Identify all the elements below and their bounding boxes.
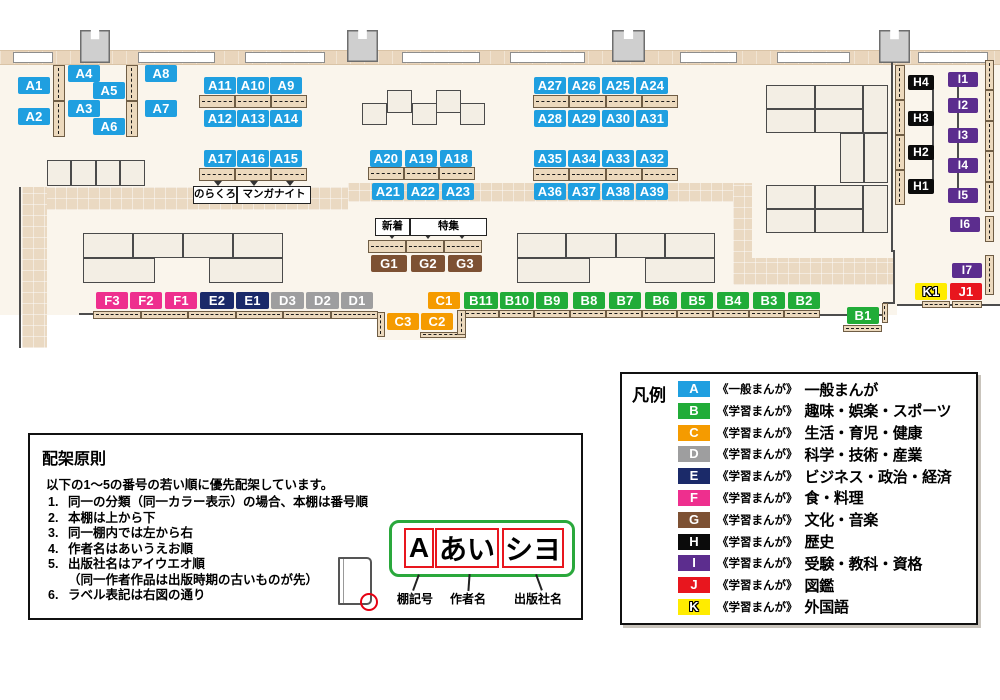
shelf-label-a17: A17 (204, 150, 236, 167)
shelf-label-a11: A11 (204, 77, 236, 94)
legend-color-chip: B (678, 403, 710, 419)
bookshelf (985, 216, 994, 242)
shelf-label-a16: A16 (237, 150, 269, 167)
label-example-cell: A (404, 528, 434, 568)
bookshelf (533, 168, 678, 181)
bookshelf-segment (368, 240, 406, 253)
legend-category: 受験・教科・資格 (805, 553, 923, 574)
bookshelf-segment (985, 90, 994, 120)
label-example-caption: 出版社名 (514, 590, 562, 607)
reading-table (766, 109, 815, 133)
legend-color-chip: H (678, 534, 710, 550)
shelf-label-d2: D2 (306, 292, 339, 309)
reading-table (645, 258, 715, 283)
shelf-label-a30: A30 (602, 110, 634, 127)
principles-intro: 以下の1～5の番号の若い順に優先配架しています。 (46, 474, 333, 493)
bookshelf-segment (843, 325, 882, 332)
reading-table (864, 133, 888, 183)
shelf-label-a38: A38 (602, 183, 634, 200)
reading-table (120, 160, 145, 186)
legend-category: ビジネス・政治・経済 (805, 466, 952, 487)
shelf-label-i7: I7 (952, 263, 982, 278)
bookshelf (93, 311, 378, 319)
bookshelf-segment (404, 167, 440, 180)
reading-table (815, 109, 863, 133)
shelf-label-a14: A14 (270, 110, 302, 127)
shelf-label-a26: A26 (568, 77, 600, 94)
bookshelf-segment (642, 310, 678, 318)
legend-color-chip: G (678, 512, 710, 528)
bookshelf-segment (236, 311, 284, 319)
reading-table (766, 209, 815, 233)
legend-category: 図鑑 (805, 575, 834, 596)
bookshelf (882, 303, 888, 323)
shelf-label-a31: A31 (636, 110, 668, 127)
reading-table (815, 85, 863, 109)
shelf-label-i3: I3 (948, 128, 978, 143)
legend-color-chip: E (678, 468, 710, 484)
principles-rule: 3.同一棚内では左から右 (48, 526, 368, 542)
legend-category: 趣味・娯楽・スポーツ (805, 400, 952, 421)
reading-table (460, 103, 485, 125)
bookshelf-segment (533, 95, 569, 108)
bookshelf-segment (922, 301, 950, 308)
principles-rule: 1.同一の分類（同一カラー表示）の場合、本棚は番号順 (48, 495, 368, 511)
shelf-label-b9: B9 (536, 292, 568, 309)
bookshelf-segment (235, 95, 271, 108)
wall-window (510, 52, 585, 63)
bookshelf-segment (569, 168, 605, 181)
reading-table (412, 103, 437, 125)
bookshelf-segment (713, 310, 749, 318)
shelf-label-a27: A27 (534, 77, 566, 94)
legend-row-f: F《学習まんが》食・料理 (678, 490, 952, 506)
legend-row-i: I《学習まんが》受験・教科・資格 (678, 555, 952, 571)
shelf-label-a7: A7 (145, 100, 177, 117)
shelf-label-a20: A20 (370, 150, 402, 167)
floor-aisle (22, 187, 47, 348)
legend-color-chip: K (678, 599, 710, 615)
bookshelf-segment (606, 95, 642, 108)
shelf-label-c1: C1 (428, 292, 460, 309)
principles-rule: 5.出版社名はアイウエオ順 (48, 557, 368, 573)
wall-window (777, 52, 850, 63)
label-position-circle-icon (360, 593, 378, 611)
reading-table (840, 133, 864, 183)
shelf-label-f1: F1 (165, 292, 197, 309)
shelf-label-h1: H1 (908, 179, 934, 194)
bookshelf (985, 60, 994, 212)
shelf-label-e2: E2 (200, 292, 234, 309)
shelf-label-a23: A23 (442, 183, 474, 200)
bookshelf-segment (569, 95, 605, 108)
bookshelf-segment (283, 311, 331, 319)
legend-type: 《学習まんが》 (717, 490, 798, 506)
principles-rule: 2.本棚は上から下 (48, 511, 368, 527)
shelf-label-a2: A2 (18, 108, 50, 125)
library-floor-map: A1A2A4A3A5A6A8A7A11A10A9A12A13A14A17A16A… (0, 0, 1000, 700)
label-example-cell: シヨ (502, 528, 564, 568)
pillar (80, 30, 110, 63)
reading-table (616, 233, 665, 258)
principles-rule-note: （同一作者作品は出版時期の古いものが先） (48, 573, 368, 589)
legend-type: 《一般まんが》 (717, 381, 798, 397)
bookshelf-segment (271, 95, 307, 108)
bookshelf-segment (93, 311, 141, 319)
label-example-leader-line (467, 574, 470, 591)
shelf-label-i1: I1 (948, 72, 978, 87)
bookshelf-segment (985, 182, 994, 212)
reading-table (517, 258, 590, 283)
map-annotation: マンガナイト (237, 186, 311, 204)
bookshelf-segment (368, 167, 404, 180)
bookshelf-segment (126, 65, 138, 101)
bookshelf (199, 168, 307, 181)
bookshelf (377, 312, 385, 337)
reading-table (863, 85, 888, 133)
wall-window (138, 52, 215, 63)
wall-window (245, 52, 325, 63)
shelf-label-g2: G2 (411, 255, 445, 272)
principles-title: 配架原則 (42, 445, 106, 469)
shelf-label-a29: A29 (568, 110, 600, 127)
reading-table (566, 233, 616, 258)
legend-rows: A《一般まんが》一般まんがB《学習まんが》趣味・娯楽・スポーツC《学習まんが》生… (678, 381, 952, 615)
bookshelf-segment (199, 95, 235, 108)
shelf-label-c2: C2 (421, 313, 453, 330)
wall-line (79, 313, 93, 315)
reading-table (863, 185, 888, 233)
legend-type: 《学習まんが》 (717, 577, 798, 593)
bookshelf-segment (784, 310, 820, 318)
shelf-label-b5: B5 (681, 292, 713, 309)
reading-table (183, 233, 233, 258)
bookshelf-segment (642, 168, 678, 181)
reading-table (209, 258, 283, 283)
shelf-label-b7: B7 (609, 292, 641, 309)
reading-table (71, 160, 96, 186)
shelf-label-a4: A4 (68, 65, 100, 82)
legend-type: 《学習まんが》 (717, 468, 798, 484)
bookshelf (126, 65, 138, 137)
legend-type: 《学習まんが》 (717, 555, 798, 571)
legend-row-c: C《学習まんが》生活・育児・健康 (678, 425, 952, 441)
map-annotation: 新着 (375, 218, 410, 236)
principles-rules: 1.同一の分類（同一カラー表示）の場合、本棚は番号順2.本棚は上から下3.同一棚… (48, 495, 368, 604)
shelf-label-a37: A37 (568, 183, 600, 200)
shelf-label-a5: A5 (93, 82, 125, 99)
legend-type: 《学習まんが》 (717, 446, 798, 462)
bookshelf-segment (377, 312, 385, 337)
legend-row-d: D《学習まんが》科学・技術・産業 (678, 446, 952, 462)
bookshelf-segment (985, 60, 994, 90)
reading-table (766, 185, 815, 209)
pillar (347, 30, 378, 62)
legend-color-chip: D (678, 446, 710, 462)
reading-table (387, 90, 412, 113)
bookshelf-segment (439, 167, 475, 180)
bookshelf-segment (271, 168, 307, 181)
shelf-label-b4: B4 (717, 292, 749, 309)
legend-type: 《学習まんが》 (717, 599, 798, 615)
floor-aisle (733, 258, 893, 285)
bookshelf-segment (406, 240, 444, 253)
bookshelf-segment (749, 310, 785, 318)
shelf-label-g1: G1 (371, 255, 407, 272)
legend-category: 一般まんが (805, 379, 879, 400)
legend-title: 凡例 (632, 381, 666, 406)
wall-window (680, 52, 737, 63)
shelf-label-a35: A35 (534, 150, 566, 167)
wall-window (13, 52, 53, 63)
shelf-label-a25: A25 (602, 77, 634, 94)
bookshelf-segment (882, 303, 888, 323)
legend-color-chip: A (678, 381, 710, 397)
wall-line (19, 187, 21, 348)
shelf-label-a18: A18 (440, 150, 472, 167)
label-example-frame: Aあいシヨ (389, 520, 575, 577)
shelf-label-i4: I4 (948, 158, 978, 173)
wall-window (402, 52, 480, 63)
bookshelf-segment (499, 310, 535, 318)
shelf-label-a22: A22 (407, 183, 439, 200)
legend-color-chip: J (678, 577, 710, 593)
shelf-label-a24: A24 (636, 77, 668, 94)
bookshelf-segment (188, 311, 236, 319)
shelf-label-i2: I2 (948, 98, 978, 113)
shelf-label-f3: F3 (96, 292, 128, 309)
bookshelf-segment (331, 311, 379, 319)
bookshelf-segment (677, 310, 713, 318)
bookshelf-segment (606, 168, 642, 181)
legend-type: 《学習まんが》 (717, 534, 798, 550)
reading-table (436, 90, 461, 113)
shelf-label-a1: A1 (18, 77, 50, 94)
bookshelf-segment (985, 151, 994, 181)
shelf-label-e1: E1 (236, 292, 269, 309)
bookshelf-segment (141, 311, 189, 319)
shelf-label-a8: A8 (145, 65, 177, 82)
legend-category: 文化・音楽 (805, 509, 879, 530)
bookshelf-segment (126, 101, 138, 137)
shelf-label-a33: A33 (602, 150, 634, 167)
bookshelf-segment (463, 310, 499, 318)
bookshelf (457, 310, 466, 335)
reading-table (83, 233, 133, 258)
shelf-label-b11: B11 (464, 292, 498, 309)
shelf-label-i5: I5 (948, 188, 978, 203)
shelf-label-a6: A6 (93, 118, 125, 135)
bookshelf-segment (534, 310, 570, 318)
legend-row-k: K《学習まんが》外国語 (678, 599, 952, 615)
reading-table (233, 233, 283, 258)
label-example-caption: 棚記号 (397, 590, 433, 607)
bookshelf-segment (985, 255, 994, 295)
principles-rule: 6.ラベル表記は右図の通り (48, 588, 368, 604)
reading-table (96, 160, 120, 186)
legend-type: 《学習まんが》 (717, 403, 798, 419)
legend-color-chip: F (678, 490, 710, 506)
shelf-label-a28: A28 (534, 110, 566, 127)
bookshelf (368, 167, 475, 180)
reading-table (665, 233, 715, 258)
shelf-label-c3: C3 (387, 313, 419, 330)
shelf-label-b8: B8 (573, 292, 605, 309)
reading-table (362, 103, 387, 125)
shelf-label-a9: A9 (270, 77, 302, 94)
bookshelf (53, 65, 65, 137)
shelf-label-a21: A21 (372, 183, 404, 200)
reading-table (815, 185, 863, 209)
bookshelf-segment (952, 301, 982, 308)
bookshelf (985, 255, 994, 295)
bookshelf-segment (985, 121, 994, 151)
reading-table (766, 85, 815, 109)
shelf-label-b10: B10 (500, 292, 534, 309)
bookshelf-segment (985, 216, 994, 242)
legend-category: 歴史 (805, 531, 834, 552)
map-annotation: のらくろ (193, 186, 237, 204)
shelf-label-a3: A3 (68, 100, 100, 117)
bookshelf (533, 95, 678, 108)
legend-type: 《学習まんが》 (717, 512, 798, 528)
reading-table (47, 160, 71, 186)
shelf-label-a10: A10 (237, 77, 269, 94)
legend-color-chip: I (678, 555, 710, 571)
shelf-label-h2: H2 (908, 145, 934, 160)
legend-row-b: B《学習まんが》趣味・娯楽・スポーツ (678, 403, 952, 419)
bookshelf (922, 301, 950, 308)
map-annotation: 特集 (410, 218, 487, 236)
reading-table (815, 209, 863, 233)
shelf-label-b6: B6 (645, 292, 677, 309)
shelf-label-i6: I6 (950, 217, 980, 232)
shelf-label-g3: G3 (448, 255, 482, 272)
shelf-label-a39: A39 (636, 183, 668, 200)
label-example-cell: あい (435, 528, 499, 568)
shelf-label-a32: A32 (636, 150, 668, 167)
pillar (612, 30, 645, 62)
wall-line (932, 82, 934, 186)
bookshelf-segment (533, 168, 569, 181)
principles-rule: 4.作者名はあいうえお順 (48, 542, 368, 558)
bookshelf (199, 95, 307, 108)
bookshelf-segment (53, 65, 65, 101)
bookshelf-segment (895, 170, 905, 205)
shelf-label-a13: A13 (237, 110, 269, 127)
wall-window (918, 52, 988, 63)
legend-category: 生活・育児・健康 (805, 422, 923, 443)
legend-color-chip: C (678, 425, 710, 441)
legend-panel: 凡例 A《一般まんが》一般まんがB《学習まんが》趣味・娯楽・スポーツC《学習まん… (620, 372, 978, 625)
reading-table (83, 258, 155, 283)
legend-category: 食・料理 (805, 487, 864, 508)
bookshelf-segment (895, 135, 905, 170)
bookshelf (895, 65, 905, 205)
legend-row-j: J《学習まんが》図鑑 (678, 577, 952, 593)
shelf-label-b3: B3 (753, 292, 785, 309)
bookshelf (843, 325, 882, 332)
shelf-label-b2: B2 (788, 292, 820, 309)
shelf-label-b1: B1 (847, 307, 879, 324)
bookshelf-segment (642, 95, 678, 108)
bookshelf-segment (895, 65, 905, 100)
pillar (879, 30, 910, 63)
shelf-label-j1: J1 (950, 283, 982, 300)
legend-category: 科学・技術・産業 (805, 444, 923, 465)
legend-row-e: E《学習まんが》ビジネス・政治・経済 (678, 468, 952, 484)
legend-category: 外国語 (805, 596, 849, 617)
shelf-label-a34: A34 (568, 150, 600, 167)
legend-row-a: A《一般まんが》一般まんが (678, 381, 952, 397)
shelf-label-a12: A12 (204, 110, 236, 127)
bookshelf-segment (235, 168, 271, 181)
shelf-label-a15: A15 (270, 150, 302, 167)
shelf-label-d1: D1 (341, 292, 373, 309)
shelf-label-d3: D3 (271, 292, 304, 309)
bookshelf-segment (606, 310, 642, 318)
shelf-label-a19: A19 (405, 150, 437, 167)
reading-table (517, 233, 566, 258)
shelf-label-h3: H3 (908, 111, 934, 126)
bookshelf-segment (53, 101, 65, 137)
bookshelf (952, 301, 982, 308)
bookshelf (368, 240, 482, 253)
bookshelf (463, 310, 820, 318)
bookshelf-segment (570, 310, 606, 318)
bookshelf-segment (895, 100, 905, 135)
legend-type: 《学習まんが》 (717, 425, 798, 441)
wall-line (893, 250, 895, 304)
label-example-caption: 作者名 (450, 590, 486, 607)
reading-table (133, 233, 183, 258)
legend-row-g: G《学習まんが》文化・音楽 (678, 512, 952, 528)
wall-line (891, 62, 893, 252)
legend-row-h: H《学習まんが》歴史 (678, 534, 952, 550)
bookshelf-segment (199, 168, 235, 181)
bookshelf-segment (457, 310, 466, 335)
bookshelf-segment (444, 240, 482, 253)
shelf-label-h4: H4 (908, 75, 934, 90)
shelving-principles-panel: 配架原則 以下の1～5の番号の若い順に優先配架しています。 1.同一の分類（同一… (28, 433, 583, 620)
shelf-label-f2: F2 (130, 292, 162, 309)
shelf-label-k1: K1 (915, 283, 947, 300)
shelf-label-a36: A36 (534, 183, 566, 200)
